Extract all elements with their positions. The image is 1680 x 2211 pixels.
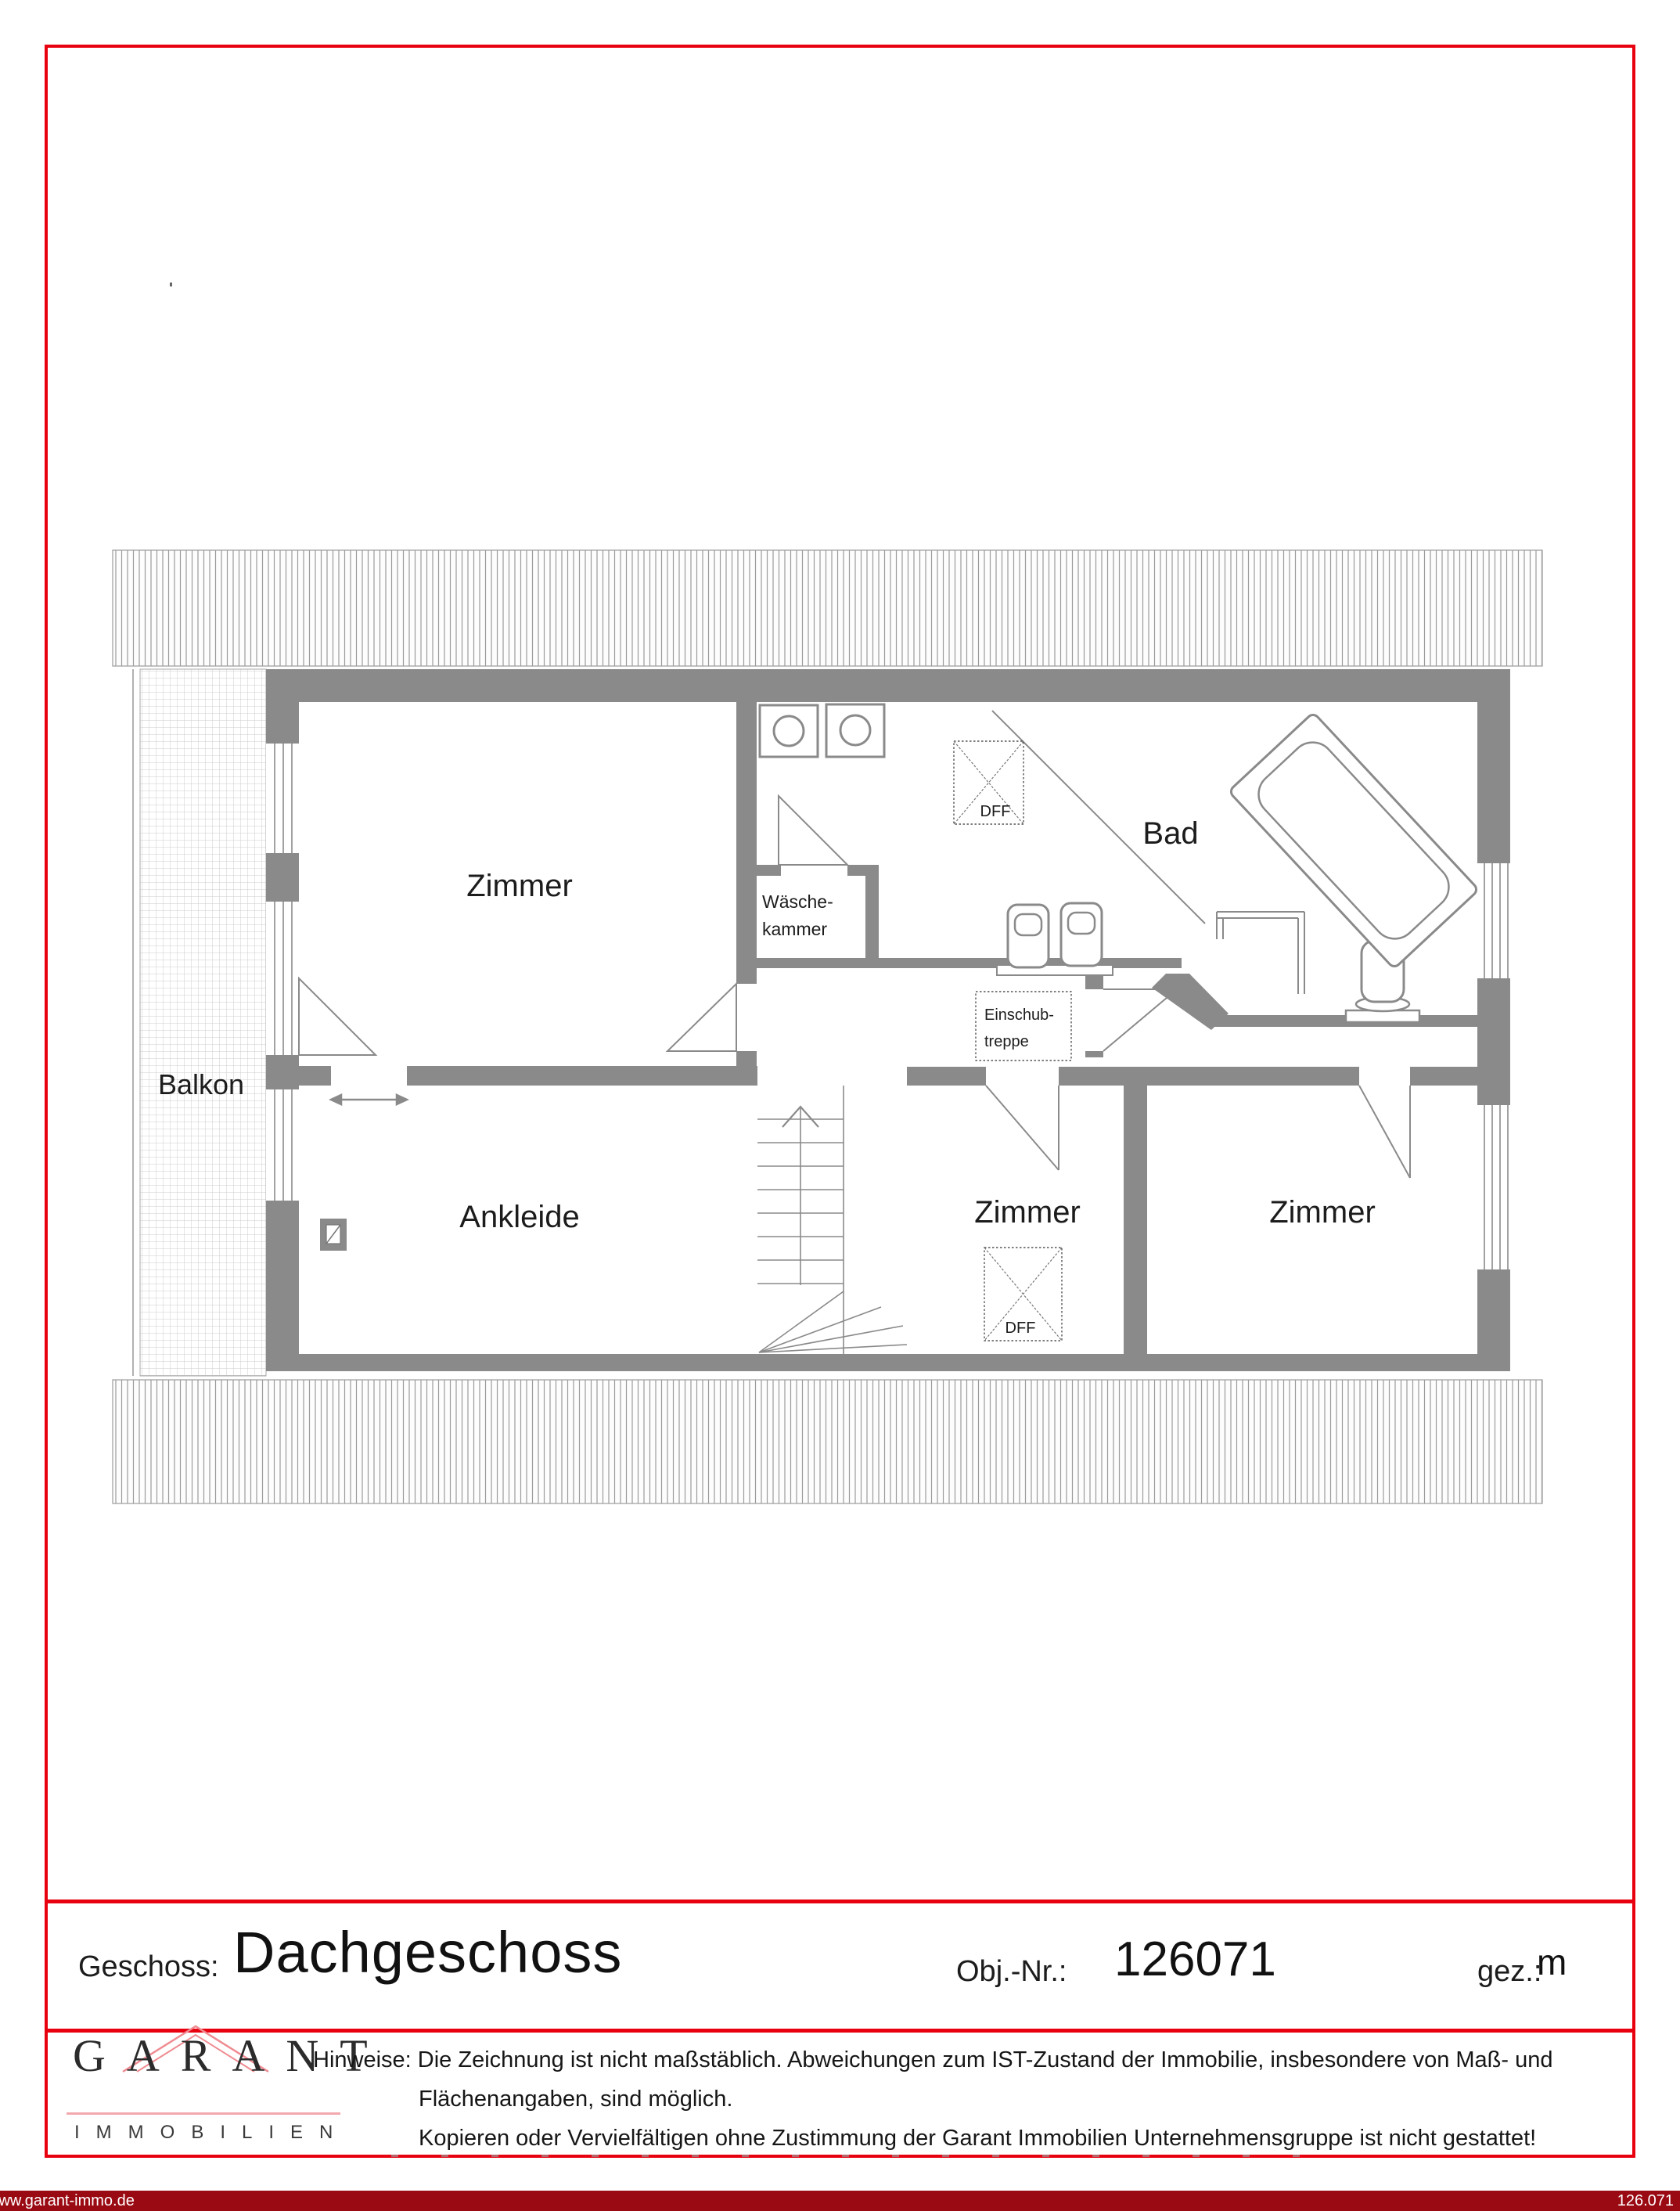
window-left-1	[266, 744, 299, 853]
wall-right-seg	[1477, 669, 1510, 863]
wall-zimmer-tl-right	[736, 1051, 757, 1066]
label-waeschekammer-1: Wäsche-	[762, 891, 833, 912]
geschoss-label: Geschoss:	[78, 1950, 219, 1984]
label-zimmer-right: Zimmer	[1269, 1195, 1376, 1230]
sliding-door-arrow	[331, 1095, 407, 1104]
wall-waesche-right	[865, 876, 879, 958]
door-zimmer-mid-swing	[986, 1086, 1059, 1170]
wall-top	[266, 669, 1510, 702]
wall-zimmer-right-top	[1410, 1067, 1510, 1086]
door-balcony-swing	[299, 978, 376, 1055]
window-left-2	[266, 902, 299, 1055]
window-left-3	[266, 1089, 299, 1201]
label-dff-bad: DFF	[980, 803, 1011, 820]
wall-right-seg	[1477, 1269, 1510, 1371]
label-einschubtreppe-2: treppe	[984, 1033, 1029, 1050]
gez-value: m	[1537, 1941, 1567, 1983]
bathtub	[1229, 712, 1479, 969]
wall-hung-bidet-inner	[1068, 913, 1095, 934]
washer-2-drum	[840, 715, 870, 745]
logo-underline	[67, 2112, 340, 2115]
obj-nr-value: 126071	[1114, 1932, 1276, 1987]
footer-url: www.garant-immo.de	[0, 2192, 135, 2210]
gez-label: gez.:	[1477, 1955, 1541, 1989]
staircase	[757, 1086, 907, 1354]
label-ankleide: Ankleide	[459, 1200, 579, 1234]
hinweise-label: Hinweise:	[313, 2047, 412, 2072]
floor-plan: Zimmer Bad Wäsche- kammer Einschub- trep…	[78, 509, 1628, 1542]
doors	[299, 796, 1410, 1178]
clipped-text-remnant	[391, 2155, 1307, 2157]
wall-left-seg	[266, 1201, 299, 1371]
window-right-2	[1477, 1105, 1510, 1269]
door-zimmer-right-swing	[1359, 1086, 1410, 1178]
footer-number: 126.071	[1617, 2192, 1674, 2210]
wall-bad-door	[1085, 1051, 1103, 1057]
washer-1-drum	[774, 716, 804, 746]
hinweise-line-3: Kopieren oder Vervielfältigen ohne Zusti…	[419, 2126, 1536, 2152]
door-zimmer-tl-swing	[667, 984, 736, 1051]
wall-ankleide-top	[407, 1066, 757, 1086]
divider-line-top	[45, 1900, 1635, 1903]
geschoss-value: Dachgeschoss	[233, 1919, 622, 1986]
logo-subtitle: IMMOBILIEN	[74, 2122, 349, 2144]
label-zimmer-mid: Zimmer	[974, 1195, 1081, 1230]
hinweise-line-1: Hinweise: Die Zeichnung ist nicht maßstä…	[313, 2047, 1553, 2073]
wall-bottom	[266, 1354, 1510, 1371]
wall-right-seg	[1477, 978, 1510, 1105]
shower-enclosure	[1217, 912, 1304, 994]
label-einschubtreppe-1: Einschub-	[984, 1006, 1054, 1024]
label-dff-mid: DFF	[1005, 1320, 1036, 1337]
wall-ankleide-top	[266, 1066, 331, 1086]
label-bad: Bad	[1142, 816, 1198, 851]
wall-hung-wc-inner	[1015, 914, 1041, 935]
wall-zimmer-mid-top	[1059, 1067, 1124, 1086]
door-waesche-swing	[779, 796, 847, 865]
hinweise-line-2: Flächenangaben, sind möglich.	[419, 2087, 732, 2112]
obj-nr-label: Obj.-Nr.:	[956, 1955, 1067, 1989]
stray-ink-dot	[170, 283, 172, 286]
wall-zimmer-tl-right	[736, 702, 757, 984]
wall-bad-lower	[736, 958, 1182, 968]
label-balkon: Balkon	[158, 1068, 244, 1100]
wall-zimmer-right-top	[1147, 1067, 1359, 1086]
wall-waesche-top	[847, 865, 879, 876]
hinweise-text-1: Die Zeichnung ist nicht maßstäblich. Abw…	[418, 2047, 1553, 2072]
wall-left-seg	[266, 853, 299, 902]
window-right-1	[1477, 863, 1510, 978]
roof-hatch-top	[113, 550, 1542, 666]
balcony-tiles	[140, 669, 266, 1376]
wall-zimmer-divider	[1124, 1067, 1147, 1354]
footer-bar	[0, 2191, 1680, 2211]
wall-zimmer-mid-top	[907, 1067, 986, 1086]
label-zimmer-topleft: Zimmer	[466, 869, 573, 903]
chimney-symbol	[320, 1219, 347, 1251]
roof-hatch-bottom	[113, 1380, 1542, 1503]
wall-left-seg	[266, 669, 299, 744]
garant-logo: GARANT IMMOBILIEN	[59, 2022, 340, 2155]
wall-waesche-top	[736, 865, 781, 876]
label-waeschekammer-2: kammer	[762, 919, 827, 939]
door-bad-swing	[1103, 989, 1177, 1051]
fixtures	[760, 704, 1479, 1022]
